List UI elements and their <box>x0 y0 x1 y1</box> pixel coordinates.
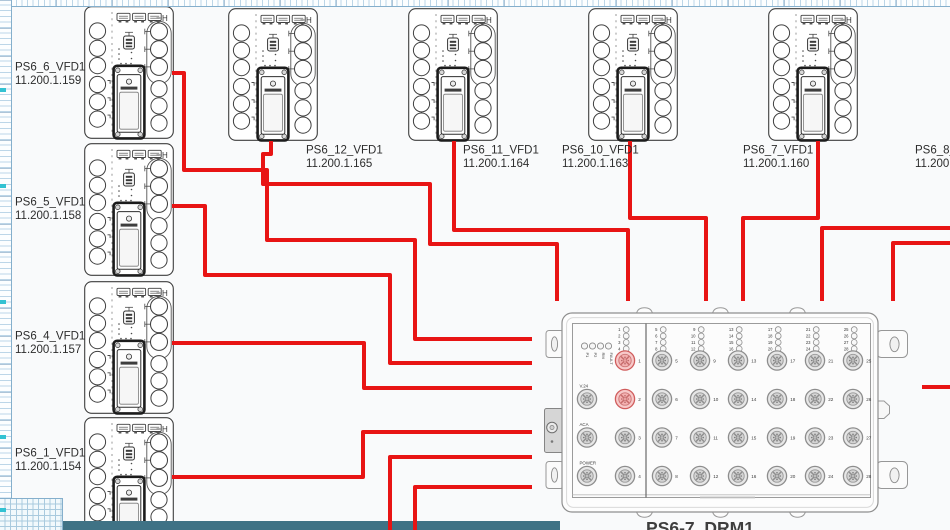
port-number-label: 21 <box>828 359 834 364</box>
device-ps6-1-vfd1[interactable] <box>85 418 174 530</box>
m12-port <box>652 428 671 447</box>
m12-port <box>805 428 824 447</box>
device-ip-label: 11.200.1.165 <box>306 158 372 170</box>
port-number-label: 8 <box>675 474 678 479</box>
m12-port <box>843 466 862 485</box>
port-led-number: 19 <box>768 340 773 345</box>
m12-port <box>767 466 786 485</box>
device-ps6-5-vfd1[interactable] <box>85 144 174 276</box>
port-led-number: 13 <box>729 327 734 332</box>
port-number-label: 12 <box>713 474 719 479</box>
m12-port <box>615 466 634 485</box>
status-led-label: P1 <box>585 353 590 359</box>
port-number-label: 24 <box>828 474 834 479</box>
port-number-label: 26 <box>866 397 872 402</box>
port-led-number: 27 <box>844 340 849 345</box>
device-ps6-7-vfd1[interactable] <box>769 9 858 141</box>
port-led-number: 10 <box>691 334 696 339</box>
port-number-label: 20 <box>790 474 796 479</box>
m12-port <box>690 351 709 370</box>
port-led <box>623 340 629 346</box>
port-number-label: 23 <box>828 436 834 441</box>
ruler-highlight-mark <box>0 184 6 188</box>
device-label: PS6_12_VFD1 <box>306 145 383 157</box>
device-ps6-11-vfd1[interactable] <box>409 9 498 141</box>
port-led-number: 14 <box>729 334 734 339</box>
m12-port <box>690 466 709 485</box>
port-led <box>813 333 819 339</box>
port-number-label: 16 <box>751 474 757 479</box>
m12-port <box>805 389 824 408</box>
device-label: PS6_11_VFD1 <box>463 145 539 157</box>
device-label: PS6_7_VFD1 <box>743 145 813 157</box>
port-led-number: 20 <box>768 346 773 351</box>
ruler-highlight-mark <box>0 508 6 512</box>
ruler-left <box>0 0 12 530</box>
port-led <box>698 333 704 339</box>
port-led-number: 23 <box>806 340 811 345</box>
status-led <box>581 343 587 349</box>
port-led-number: 22 <box>806 334 811 339</box>
m12-port <box>728 466 747 485</box>
port-led <box>623 333 629 339</box>
aux-port-label: POWER <box>580 461 597 466</box>
m12-port <box>652 389 671 408</box>
m12-port <box>728 389 747 408</box>
port-led <box>775 340 781 346</box>
m12-port <box>805 466 824 485</box>
port-number-label: 25 <box>866 359 872 364</box>
port-number-label: 11 <box>713 436 718 441</box>
cable-bottom-edge-a[interactable] <box>390 457 532 530</box>
cable-ps6-4-vfd1[interactable] <box>172 343 532 388</box>
port-number-label: 28 <box>866 474 872 479</box>
device-ps6-4-vfd1[interactable] <box>85 282 174 414</box>
status-led-label: P2 <box>593 353 598 359</box>
device-label: PS6_10_VFD1 <box>562 145 639 157</box>
device-ip-label: 11.200.1.160 <box>743 158 809 170</box>
device-label: PS6_4_VFD1 <box>15 331 85 343</box>
m12-port <box>728 428 747 447</box>
ruler-highlight-mark <box>0 88 6 92</box>
port-led-number: 26 <box>844 334 849 339</box>
port-number-label: 17 <box>790 359 796 364</box>
switch-name-label: PS6-7_DRM1 <box>646 518 754 530</box>
sheet-corner-grid <box>0 498 63 530</box>
device-ip-label-partial: 11.200.1 <box>915 158 950 170</box>
port-led-number: 24 <box>806 346 811 351</box>
status-led <box>597 343 603 349</box>
port-number-label: 7 <box>675 436 678 441</box>
port-number-label: 4 <box>638 474 641 479</box>
switch-layer: P1P2RMFAULT12341234567856789101112910111… <box>545 308 908 530</box>
status-led <box>589 343 595 349</box>
cable-right-edge-b[interactable] <box>893 243 950 301</box>
port-number-label: 3 <box>638 436 641 441</box>
device-label-partial: PS6_8_V <box>915 145 950 157</box>
bottom-band-layer <box>62 521 560 530</box>
ruler-top <box>0 0 950 7</box>
port-led <box>698 327 704 333</box>
m12-port <box>843 351 862 370</box>
port-number-label: 19 <box>790 436 796 441</box>
port-number-label: 22 <box>828 397 834 402</box>
status-led <box>605 343 611 349</box>
port-led <box>851 333 857 339</box>
port-led <box>660 327 666 333</box>
port-led <box>813 327 819 333</box>
device-label: PS6_6_VFD1 <box>15 62 85 74</box>
port-number-label: 18 <box>790 397 796 402</box>
port-led-number: 25 <box>844 327 849 332</box>
status-led-label: FAULT <box>609 353 614 366</box>
port-number-label: 6 <box>675 397 678 402</box>
m12-port <box>615 428 634 447</box>
device-ip-label: 11.200.1.159 <box>15 75 81 87</box>
port-led <box>736 333 742 339</box>
device-label: PS6_1_VFD1 <box>15 448 85 460</box>
m12-port <box>843 428 862 447</box>
aux-port <box>577 428 596 447</box>
port-led-number: 17 <box>768 327 773 332</box>
port-number-label: 2 <box>638 397 641 402</box>
ruler-highlight-mark <box>0 435 6 439</box>
port-led-number: 12 <box>691 346 696 351</box>
device-ip-label: 11.200.1.163 <box>562 158 628 170</box>
bottom-sheet-band <box>62 521 560 530</box>
port-number-label: 15 <box>751 436 757 441</box>
port-led <box>851 340 857 346</box>
cable-ps6-10-vfd1[interactable] <box>630 141 706 301</box>
device-ps6-12-vfd1[interactable] <box>229 9 318 141</box>
port-number-label: 14 <box>751 397 757 402</box>
switch-ps6-7-drm1[interactable]: P1P2RMFAULT12341234567856789101112910111… <box>545 308 908 530</box>
aux-port <box>577 389 596 408</box>
cable-ps6-1-vfd1[interactable] <box>172 432 532 477</box>
m12-port <box>767 351 786 370</box>
m12-port <box>690 389 709 408</box>
port-led <box>851 327 857 333</box>
m12-port <box>805 351 824 370</box>
m12-port <box>690 428 709 447</box>
port-led <box>698 340 704 346</box>
m12-port <box>767 428 786 447</box>
m12-port <box>652 466 671 485</box>
port-led <box>775 327 781 333</box>
aux-port <box>577 466 596 485</box>
port-led-number: 18 <box>768 334 773 339</box>
port-number-label: 5 <box>675 359 678 364</box>
device-label: PS6_5_VFD1 <box>15 197 85 209</box>
aux-port-label: V.24 <box>580 384 589 389</box>
port-led <box>660 340 666 346</box>
cable-right-edge-a[interactable] <box>822 228 950 301</box>
device-ip-label: 11.200.1.158 <box>15 210 81 222</box>
m12-port <box>767 389 786 408</box>
port-led-number: 28 <box>844 346 849 351</box>
device-ip-label: 11.200.1.157 <box>15 344 81 356</box>
port-number-label: 13 <box>751 359 757 364</box>
port-led-number: 11 <box>691 340 696 345</box>
port-led <box>736 327 742 333</box>
port-led-number: 21 <box>806 327 811 332</box>
m12-port-red <box>615 351 634 370</box>
port-led <box>660 333 666 339</box>
device-ps6-6-vfd1[interactable] <box>85 7 174 139</box>
port-led-number: 15 <box>729 340 734 345</box>
port-number-label: 27 <box>866 436 872 441</box>
network-diagram: H <box>0 0 950 530</box>
port-led <box>813 340 819 346</box>
m12-port <box>652 351 671 370</box>
port-number-label: 1 <box>638 359 641 364</box>
port-led <box>775 333 781 339</box>
device-ps6-10-vfd1[interactable] <box>589 9 678 141</box>
device-ip-label: 11.200.1.164 <box>463 158 530 170</box>
port-led <box>623 327 629 333</box>
m12-port <box>728 351 747 370</box>
port-led <box>736 340 742 346</box>
device-ip-label: 11.200.1.154 <box>15 461 82 473</box>
status-led-label: RM <box>601 353 606 359</box>
ruler-highlight-mark <box>0 300 6 304</box>
port-number-label: 10 <box>713 397 719 402</box>
port-number-label: 9 <box>713 359 716 364</box>
m12-port-red <box>615 389 634 408</box>
port-led-number: 16 <box>729 346 734 351</box>
aux-port-label: ACA <box>580 422 589 427</box>
m12-port <box>843 389 862 408</box>
diagram-canvas[interactable]: H <box>0 0 950 530</box>
